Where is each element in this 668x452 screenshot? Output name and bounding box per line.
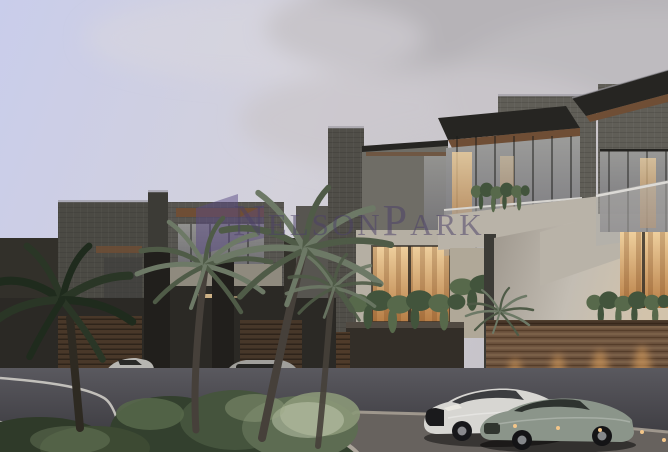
scene-canvas xyxy=(0,0,668,452)
grille xyxy=(425,408,444,426)
architectural-rendering: NelsonPark xyxy=(0,0,668,452)
